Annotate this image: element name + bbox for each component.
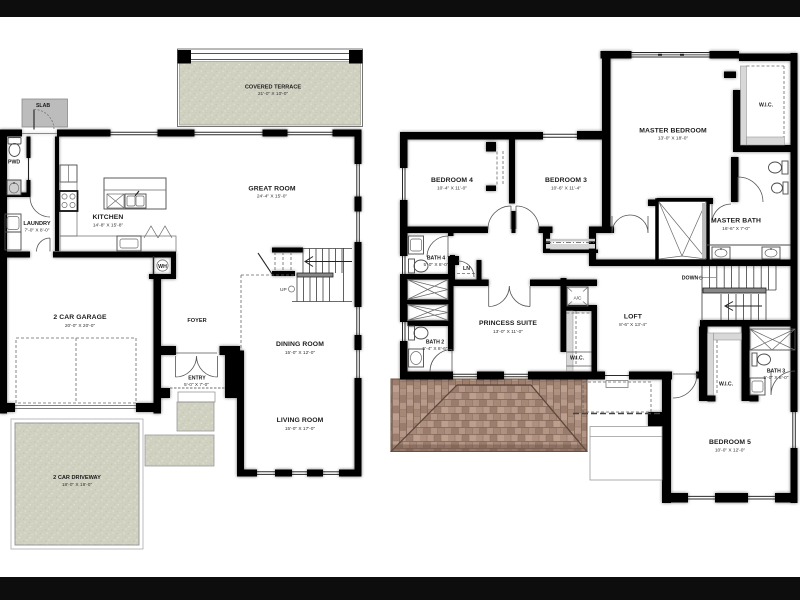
svg-text:BEDROOM 3: BEDROOM 3 [545, 177, 587, 184]
svg-text:SLAB: SLAB [36, 103, 50, 109]
svg-text:13'-0" X 18'-0": 13'-0" X 18'-0" [658, 136, 689, 142]
svg-text:W.I.C.: W.I.C. [759, 103, 774, 109]
svg-text:BATH 2: BATH 2 [426, 340, 444, 346]
svg-text:5'-0" X 7'-0": 5'-0" X 7'-0" [184, 382, 209, 388]
svg-text:10'-0" X 12'-0": 10'-0" X 12'-0" [715, 448, 746, 454]
svg-text:LAUNDRY: LAUNDRY [23, 221, 50, 227]
svg-text:GREAT ROOM: GREAT ROOM [248, 186, 296, 193]
svg-text:7'-0" X 8'-0": 7'-0" X 8'-0" [25, 228, 50, 234]
svg-text:20'-0" X 20'-0": 20'-0" X 20'-0" [65, 323, 96, 329]
svg-text:2 CAR DRIVEWAY: 2 CAR DRIVEWAY [53, 475, 101, 481]
svg-text:14'-8" X 15'-8": 14'-8" X 15'-8" [93, 223, 124, 229]
svg-text:BATH 4: BATH 4 [427, 256, 445, 262]
svg-text:W.I.C.: W.I.C. [570, 356, 585, 362]
svg-text:LIVING ROOM: LIVING ROOM [277, 417, 324, 424]
svg-text:COVERED TERRACE: COVERED TERRACE [245, 85, 302, 91]
svg-text:16'-6" X 7'-0": 16'-6" X 7'-0" [722, 226, 750, 232]
svg-text:MASTER BATH: MASTER BATH [711, 218, 761, 225]
svg-text:UP: UP [280, 287, 287, 293]
svg-text:13'-0" X 11'-0": 13'-0" X 11'-0" [493, 329, 523, 335]
svg-text:PRINCESS SUITE: PRINCESS SUITE [479, 320, 537, 327]
svg-text:5'-4" X 8'-6": 5'-4" X 8'-6" [423, 346, 448, 352]
svg-text:10'-6" X 11'-4": 10'-6" X 11'-4" [551, 186, 581, 192]
svg-text:15'-0" X 17'-0": 15'-0" X 17'-0" [285, 426, 316, 432]
svg-text:LN: LN [463, 266, 470, 272]
svg-text:5'-0" X 8'-0": 5'-0" X 8'-0" [424, 262, 449, 268]
svg-text:24'-4" X 15'-0": 24'-4" X 15'-0" [257, 194, 288, 200]
svg-text:W.I.C.: W.I.C. [719, 382, 734, 388]
svg-text:15'-0" X 12'-0": 15'-0" X 12'-0" [285, 350, 316, 356]
svg-text:BEDROOM 5: BEDROOM 5 [709, 439, 751, 446]
svg-text:LOFT: LOFT [624, 314, 643, 321]
svg-text:WH: WH [158, 264, 167, 270]
svg-text:ENTRY: ENTRY [188, 376, 206, 382]
svg-text:DINING ROOM: DINING ROOM [276, 341, 324, 348]
svg-text:5'-0" X 8'-0": 5'-0" X 8'-0" [764, 375, 789, 381]
svg-text:FOYER: FOYER [187, 318, 206, 324]
svg-text:21'-0" X 10'-0": 21'-0" X 10'-0" [258, 91, 289, 97]
svg-text:18'-0" X 18'-0": 18'-0" X 18'-0" [62, 482, 93, 488]
svg-text:KITCHEN: KITCHEN [93, 214, 124, 221]
svg-text:A/C: A/C [574, 296, 583, 302]
svg-text:10'-4" X 11'-0": 10'-4" X 11'-0" [437, 186, 467, 192]
svg-text:BATH 3: BATH 3 [767, 369, 785, 375]
svg-text:MASTER BEDROOM: MASTER BEDROOM [639, 128, 707, 135]
svg-text:PWD: PWD [8, 160, 20, 166]
svg-text:8'-6" X 13'-4": 8'-6" X 13'-4" [619, 322, 647, 328]
svg-text:DOWN: DOWN [682, 276, 699, 282]
svg-text:BEDROOM 4: BEDROOM 4 [431, 177, 473, 184]
svg-text:2 CAR GARAGE: 2 CAR GARAGE [53, 314, 107, 321]
